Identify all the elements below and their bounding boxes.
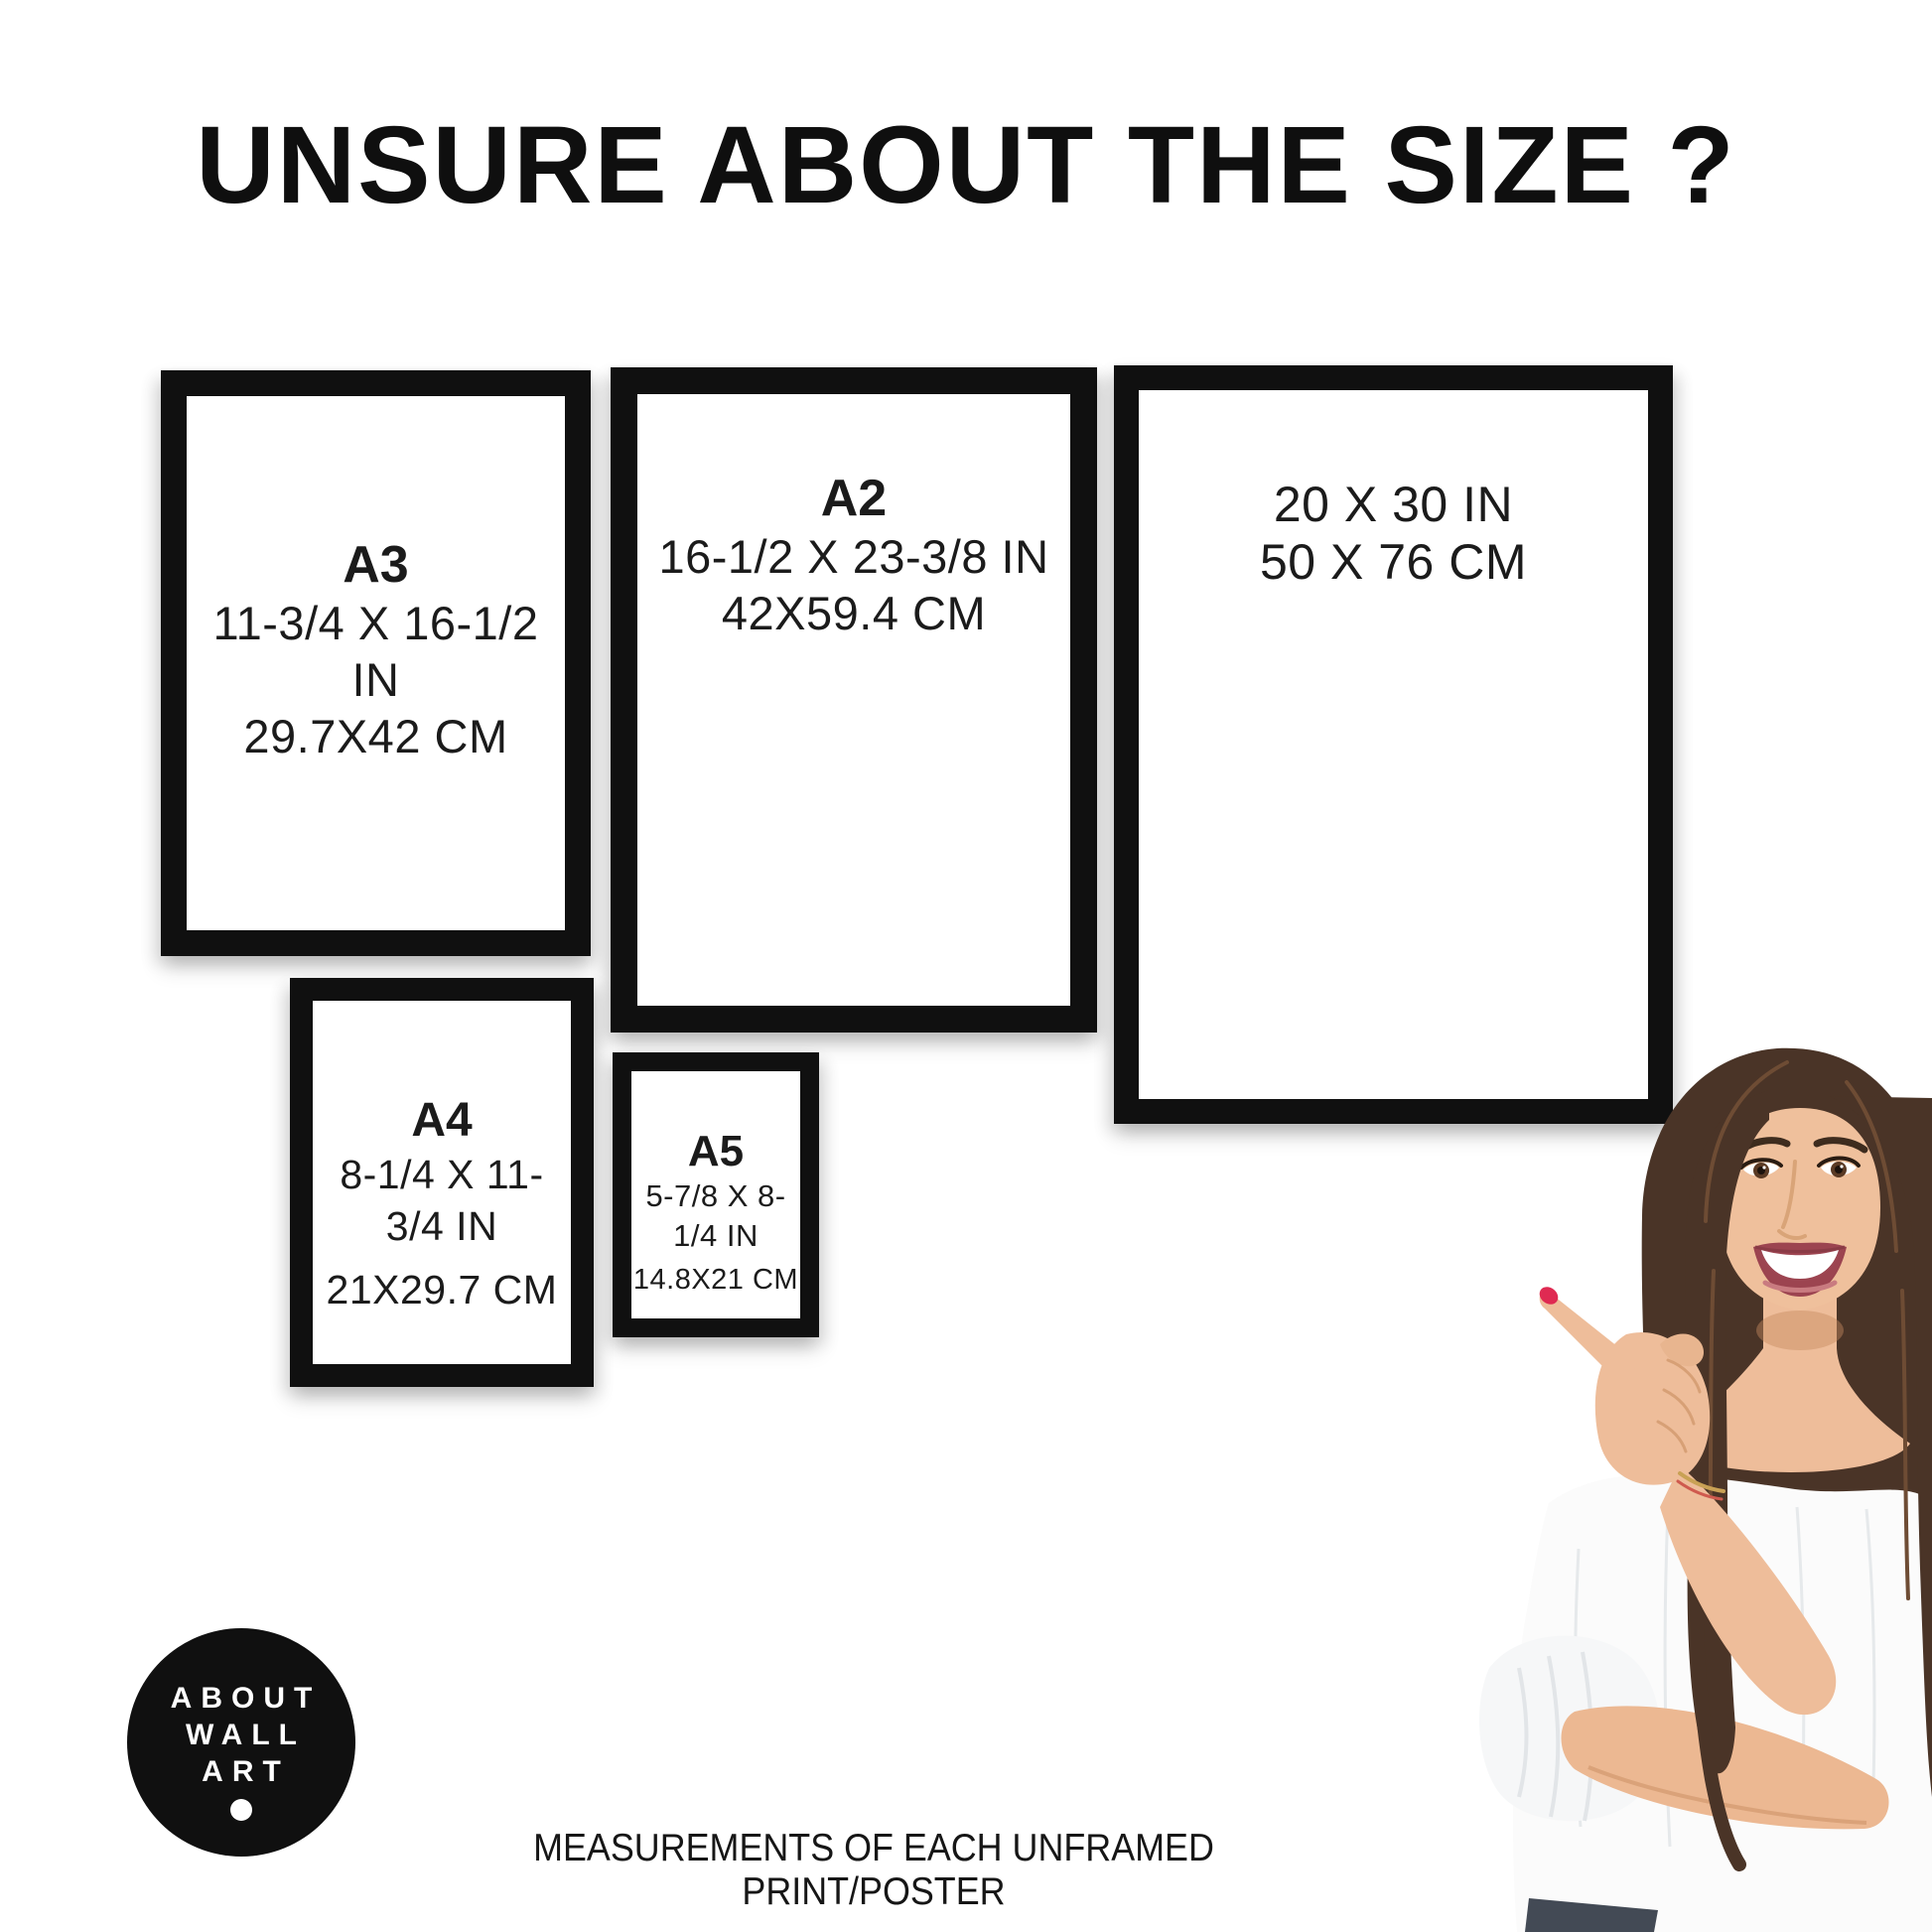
brand-logo-line1: ABOUT [162, 1680, 322, 1717]
frame-a3: A3 11-3/4 X 16-1/2 IN 29.7X42 CM [161, 370, 591, 956]
frame-a2-cm: 42X59.4 CM [722, 585, 986, 641]
frame-a2-inches: 16-1/2 X 23-3/8 IN [658, 528, 1048, 585]
chin-shadow [1756, 1311, 1844, 1350]
frame-a3-text: A3 11-3/4 X 16-1/2 IN 29.7X42 CM [187, 535, 565, 764]
frame-a4-inches: 8-1/4 X 11-3/4 IN [313, 1149, 571, 1252]
frame-20x30-cm: 50 X 76 CM [1260, 533, 1527, 591]
frame-a2-label: A2 [821, 469, 887, 528]
model-photo [1370, 1033, 1932, 1932]
frame-a5-text: A5 5-7/8 X 8-1/4 IN 14.8X21 CM [631, 1127, 800, 1300]
frame-20x30-text: 20 X 30 IN 50 X 76 CM [1139, 476, 1648, 591]
frame-a4: A4 8-1/4 X 11-3/4 IN 21X29.7 CM [290, 978, 594, 1387]
frame-a2-text: A2 16-1/2 X 23-3/8 IN 42X59.4 CM [637, 469, 1070, 641]
size-guide-poster: UNSURE ABOUT THE SIZE ? A3 11-3/4 X 16-1… [0, 0, 1932, 1932]
brand-logo-line3: ART [193, 1753, 290, 1790]
frame-a2: A2 16-1/2 X 23-3/8 IN 42X59.4 CM [611, 367, 1097, 1033]
frame-a3-inches: 11-3/4 X 16-1/2 IN [187, 595, 565, 708]
frame-a4-cm: 21X29.7 CM [327, 1264, 558, 1315]
frame-a5: A5 5-7/8 X 8-1/4 IN 14.8X21 CM [613, 1052, 819, 1337]
caption-text: MEASUREMENTS OF EACH UNFRAMED PRINT/POST… [399, 1827, 1349, 1914]
frame-a4-label: A4 [411, 1093, 472, 1149]
frame-a5-label: A5 [688, 1127, 744, 1176]
frame-a5-cm: 14.8X21 CM [633, 1260, 798, 1300]
frame-a3-cm: 29.7X42 CM [243, 708, 507, 764]
frame-a3-label: A3 [343, 535, 408, 595]
frame-a5-inches: 5-7/8 X 8-1/4 IN [631, 1176, 800, 1256]
frame-20x30-inches: 20 X 30 IN [1274, 476, 1513, 533]
frame-20x30: 20 X 30 IN 50 X 76 CM [1114, 365, 1673, 1124]
brand-logo-line2: WALL [177, 1717, 306, 1753]
page-title: UNSURE ABOUT THE SIZE ? [0, 101, 1932, 230]
frame-a4-text: A4 8-1/4 X 11-3/4 IN 21X29.7 CM [313, 1093, 571, 1315]
brand-logo: ABOUT WALL ART [127, 1628, 355, 1857]
brand-logo-dot-icon [230, 1799, 252, 1821]
